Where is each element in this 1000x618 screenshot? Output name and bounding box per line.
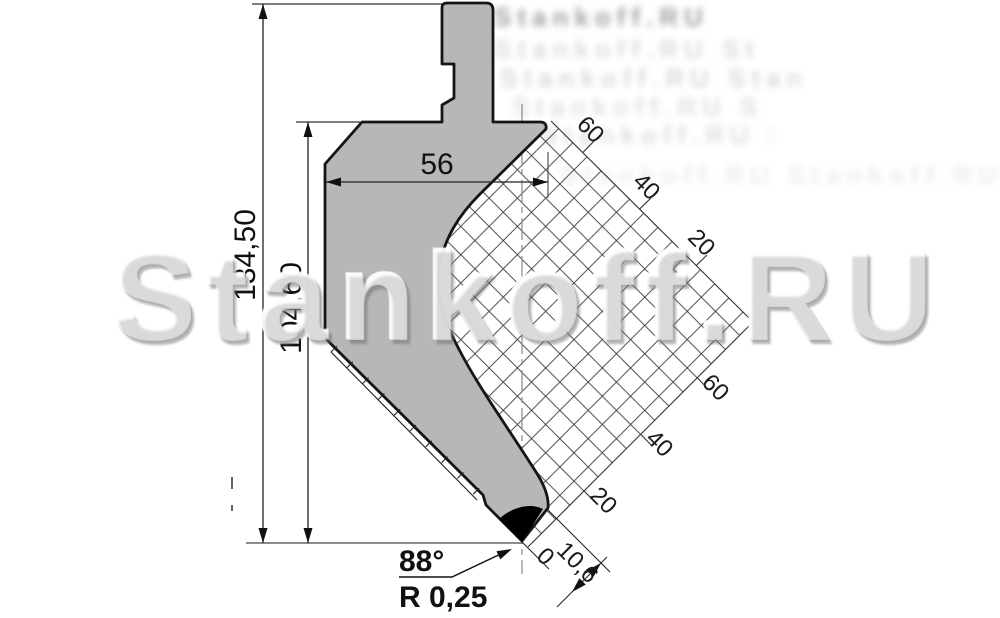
dimension-working-height: 104,60 [275,122,313,543]
grid-label-top-20: 20 [682,224,720,262]
total-height-label: 134,50 [229,209,262,301]
working-height-label: 104,60 [275,262,308,354]
tip-angle-label: 88° [399,545,444,578]
grid-label-bottom-20: 20 [584,482,622,520]
grid-label-top-0: 0 [745,285,774,314]
tip-angle-callout: 88° R 0,25 [399,545,512,614]
tip-radius-label: R 0,25 [399,581,487,614]
technical-drawing: 60 40 20 0 60 40 20 0 134,50 [0,0,1000,618]
grid-label-bottom-40: 40 [640,425,678,463]
nose-offset-label: 10,6 [551,537,603,589]
grid-label-bottom-60: 60 [696,369,734,407]
dimension-total-height: 134,50 [229,4,268,543]
drawing-canvas: Stankoff.RU Stankoff.RU Stankoff.RU Stan… [0,0,1000,618]
body-width-label: 56 [420,148,453,181]
grid-label-top-40: 40 [627,168,665,206]
grid-label-top-60: 60 [571,111,609,149]
